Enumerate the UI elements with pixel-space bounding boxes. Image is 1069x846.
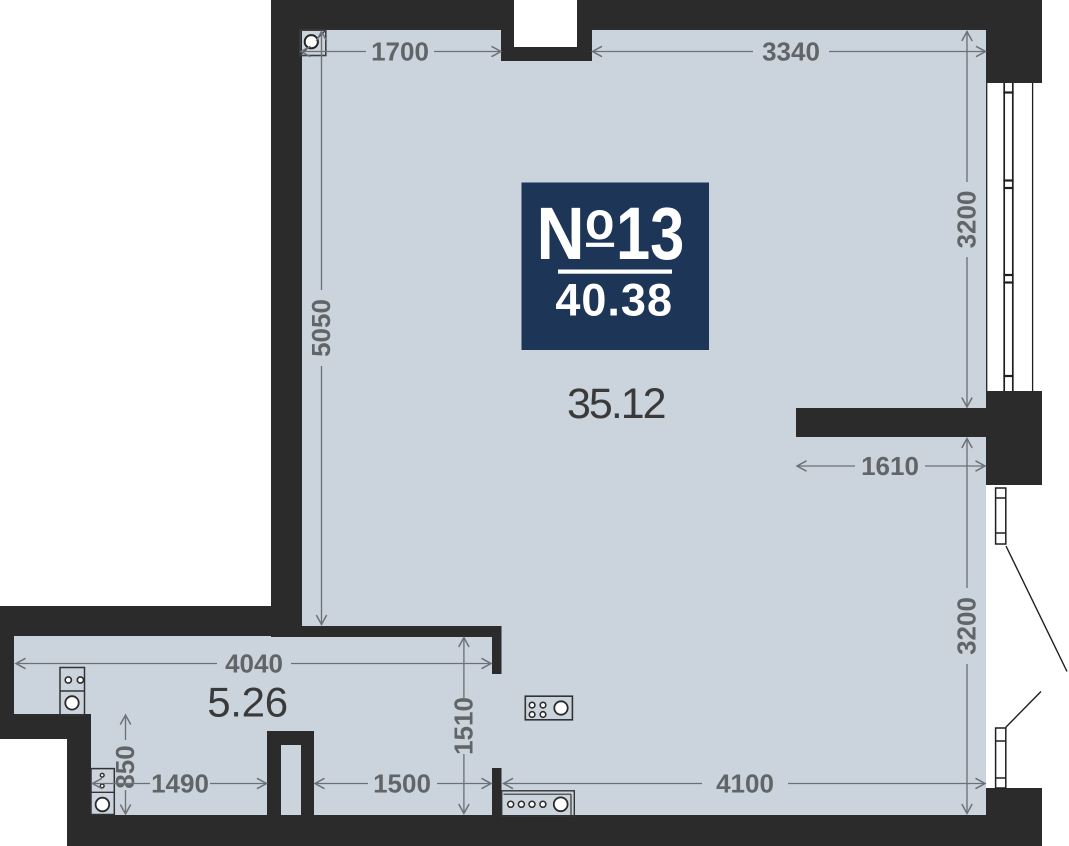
svg-text:3200: 3200 [952, 191, 982, 249]
svg-text:o: o [585, 190, 614, 250]
svg-text:13: 13 [616, 193, 684, 276]
svg-text:4040: 4040 [225, 649, 283, 679]
svg-text:3200: 3200 [952, 597, 982, 655]
svg-text:1490: 1490 [151, 769, 209, 799]
svg-text:4100: 4100 [716, 769, 774, 799]
svg-text:850: 850 [110, 745, 140, 788]
svg-text:35.12: 35.12 [567, 380, 665, 428]
svg-text:1510: 1510 [449, 697, 479, 755]
svg-text:5.26: 5.26 [207, 679, 288, 726]
svg-text:N: N [537, 192, 585, 275]
svg-text:1610: 1610 [861, 451, 919, 481]
svg-text:1700: 1700 [371, 37, 429, 67]
svg-text:40.38: 40.38 [555, 275, 673, 326]
svg-text:5050: 5050 [306, 299, 336, 357]
svg-text:1500: 1500 [373, 769, 431, 799]
svg-text:3340: 3340 [762, 37, 820, 67]
